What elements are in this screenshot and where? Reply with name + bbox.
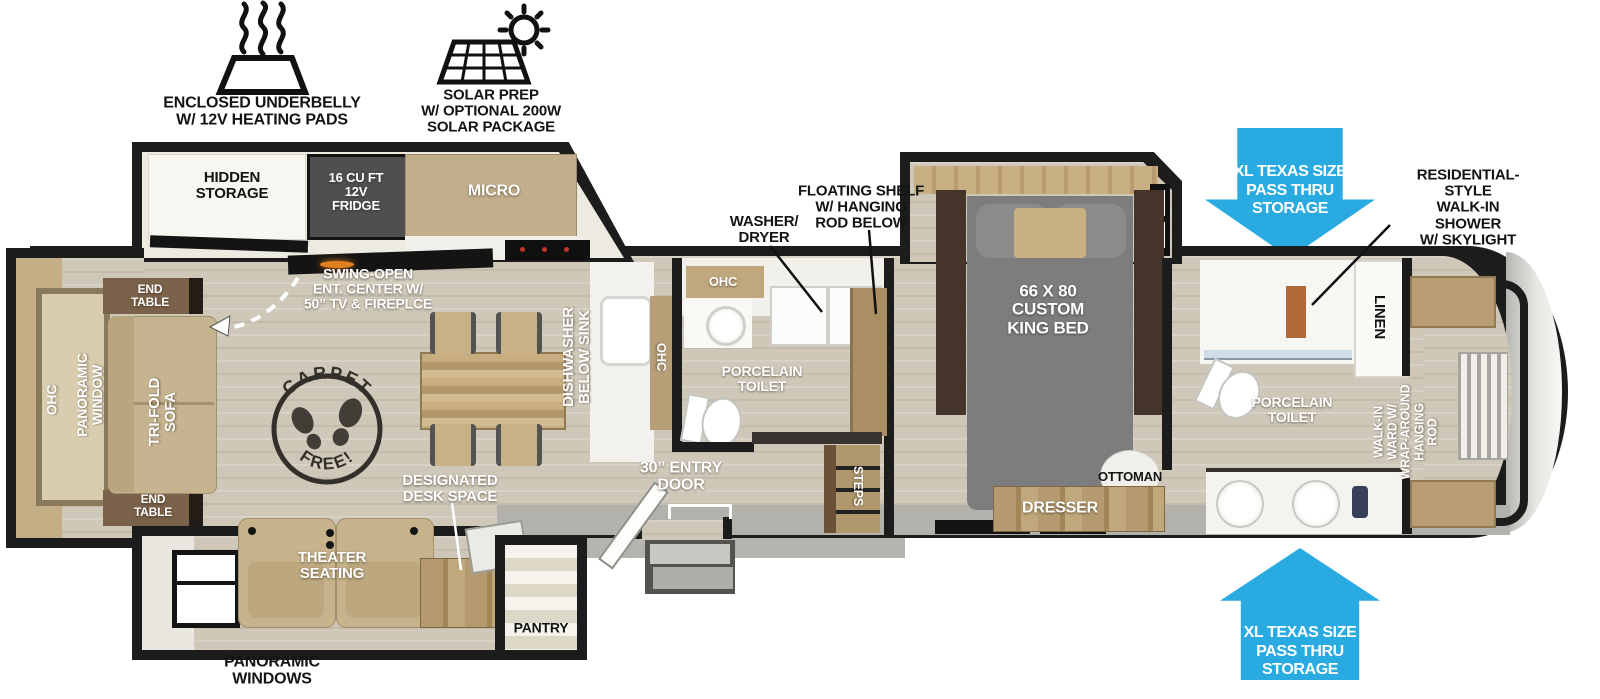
steps-label: STEPS bbox=[850, 466, 864, 506]
washer-dryer-note: WASHER/ DRYER bbox=[730, 214, 799, 246]
dishwasher-label: DISHWASHER BELOW SINK bbox=[561, 307, 593, 407]
desk-pointer bbox=[452, 503, 461, 570]
swing-ent-label: SWING-OPEN ENT. CENTER W/ 50” TV & FIREP… bbox=[304, 266, 432, 311]
designated-desk-label: DESIGNATED DESK SPACE bbox=[402, 473, 497, 505]
theater-seating-label: THEATER SEATING bbox=[298, 550, 366, 582]
linen-label: LINEN bbox=[1371, 295, 1387, 339]
washer-dryer-pointer bbox=[770, 246, 822, 312]
fridge-label: 16 CU FT 12V FRIDGE bbox=[329, 171, 384, 213]
rv-floorplan-diagram: ENCLOSED UNDERBELLY W/ 12V HEATING PADS … bbox=[0, 0, 1600, 699]
king-bed-label: 66 X 80 CUSTOM KING BED bbox=[1007, 282, 1089, 337]
annotation-overlay: CARPET FREE! bbox=[0, 0, 1600, 699]
ohc-kitchen-label: OHC bbox=[654, 343, 668, 371]
svg-text:CARPET: CARPET bbox=[278, 362, 376, 399]
swing-arrowhead bbox=[210, 316, 230, 336]
swing-open-arc bbox=[234, 278, 298, 327]
entry-door-label: 30” ENTRY DOOR bbox=[640, 460, 722, 495]
end-table-top-label: END TABLE bbox=[131, 283, 169, 309]
shower-note-label: RESIDENTIAL-STYLE WALK-IN SHOWER W/ SKYL… bbox=[1402, 168, 1534, 249]
panoramic-window-label: PANORAMIC WINDOW bbox=[75, 353, 105, 437]
hidden-storage-label: HIDDEN STORAGE bbox=[196, 170, 269, 202]
walk-in-ward-label: WALK-IN WARD W/ WRAP-AROUND HANGING ROD bbox=[1372, 384, 1440, 479]
carpet-free-stamp: CARPET FREE! bbox=[274, 362, 380, 482]
tri-fold-sofa-label: TRI-FOLD SOFA bbox=[147, 378, 179, 446]
ohc-mid-bath-label: OHC bbox=[709, 275, 737, 289]
stamp-bottom-text: FREE! bbox=[297, 446, 358, 473]
stamp-top-text: CARPET bbox=[278, 362, 376, 399]
mid-bath-toilet-label: PORCELAIN TOILET bbox=[722, 364, 803, 394]
end-table-bottom-label: END TABLE bbox=[134, 493, 172, 519]
dresser-label: DRESSER bbox=[1022, 499, 1098, 516]
shower-pointer bbox=[1312, 225, 1390, 305]
micro-label: MICRO bbox=[468, 182, 520, 199]
panoramic-windows-label: PANORAMIC WINDOWS bbox=[224, 654, 320, 689]
ohc-rear-label: OHC bbox=[44, 385, 59, 416]
ottoman-label: OTTOMAN bbox=[1098, 470, 1162, 484]
bootprint-icon bbox=[287, 395, 366, 453]
svg-text:FREE!: FREE! bbox=[297, 446, 358, 473]
front-bath-toilet-label: PORCELAIN TOILET bbox=[1252, 395, 1333, 425]
floating-shelf-pointer bbox=[869, 230, 876, 314]
floating-shelf-note: FLOATING SHELF W/ HANGING ROD BELOW bbox=[798, 184, 924, 233]
pantry-label: PANTRY bbox=[514, 620, 569, 635]
